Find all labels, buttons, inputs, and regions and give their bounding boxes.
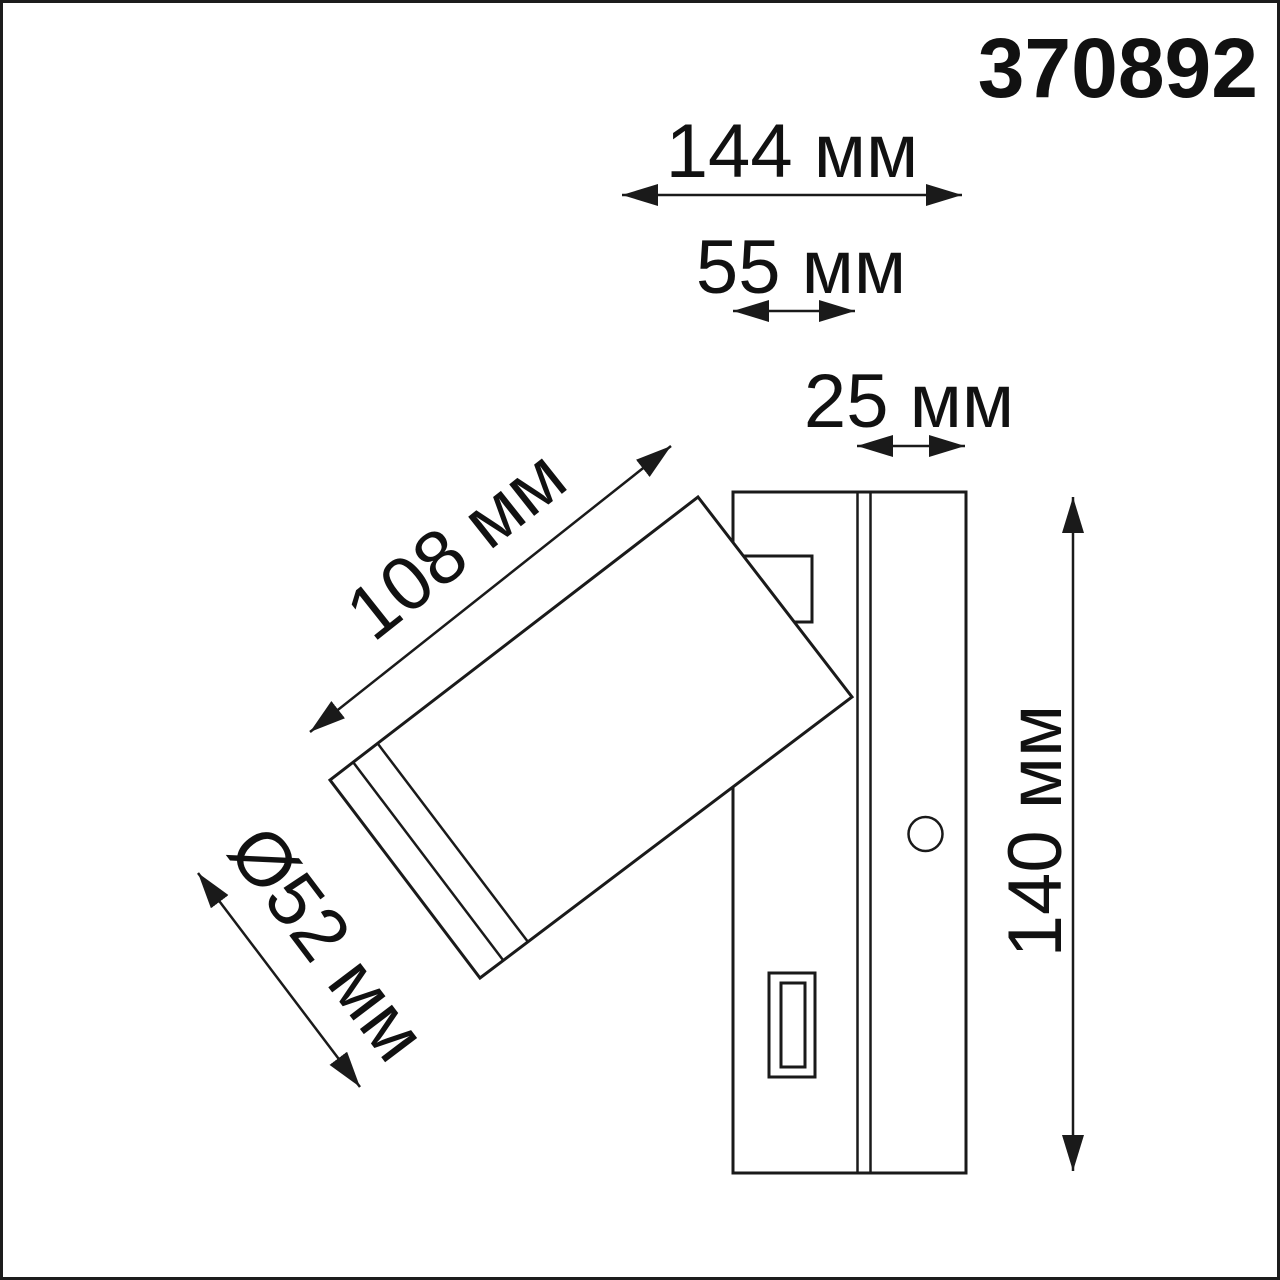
dimension-base-depth: 25 мм [804,359,1014,446]
dimension-base-depth-label: 25 мм [804,359,1014,444]
dimension-plate-section-depth-label: 55 мм [696,225,906,310]
drawing-canvas: 370892 144 мм 55 мм [0,0,1280,1280]
article-number: 370892 [978,21,1258,115]
dimension-plate-section-depth: 55 мм [696,225,906,311]
dimension-overall-height-label: 140 мм [993,705,1078,957]
switch-inner [781,983,805,1067]
dimension-drawing-svg: 370892 144 мм 55 мм [0,0,1280,1280]
dimension-overall-width-label: 144 мм [666,109,918,194]
dimension-overall-width: 144 мм [622,109,962,195]
